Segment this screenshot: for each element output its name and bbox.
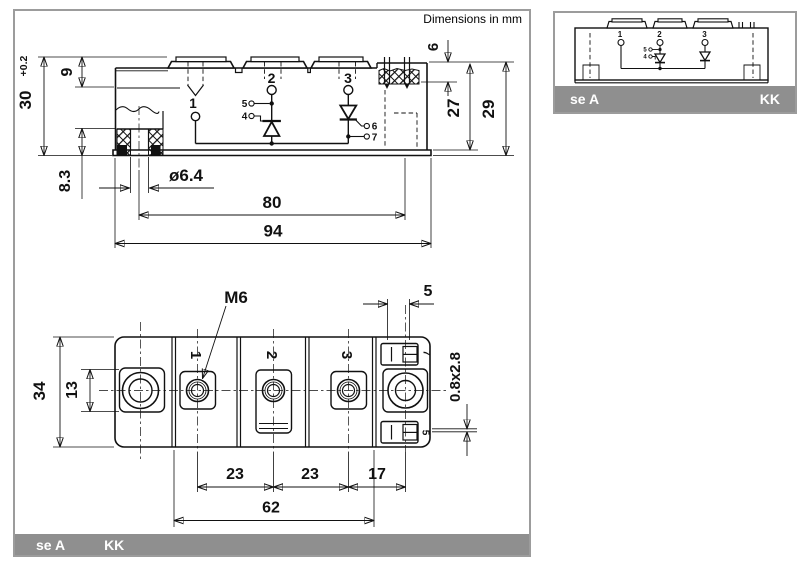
dim-hole-diameter-text: ø6.4 bbox=[169, 166, 204, 185]
dim-9-text: 9 bbox=[59, 67, 76, 76]
side-terminal-1-label: 1 bbox=[189, 96, 197, 111]
dim-tab-cross-section-text: 0.8x2.8 bbox=[447, 352, 464, 402]
dim-hole-diameter: ø6.4 bbox=[99, 166, 214, 188]
dim-23b-text: 23 bbox=[301, 466, 319, 483]
dim-30: 30 +0.2 bbox=[16, 55, 44, 155]
dim-30-text: 30 bbox=[16, 91, 35, 110]
dim-29-text: 29 bbox=[479, 100, 498, 119]
dim-62: 62 bbox=[174, 500, 374, 521]
dim-8-3-text: 8.3 bbox=[57, 170, 74, 192]
bottom-terminal-3-label: 3 bbox=[338, 351, 355, 359]
dim-13: 13 bbox=[64, 370, 90, 412]
dim-34: 34 bbox=[30, 337, 60, 447]
dim-27: 27 bbox=[444, 64, 470, 150]
gate-4-label: 4 bbox=[242, 112, 248, 123]
dim-94-text: 94 bbox=[264, 222, 283, 241]
dim-17-text: 17 bbox=[368, 466, 386, 483]
dim-23a: 23 bbox=[198, 466, 274, 487]
gate-6-label: 6 bbox=[372, 122, 378, 133]
dim-6: 6 bbox=[425, 40, 448, 96]
terminal-1-node bbox=[191, 112, 199, 120]
drawing-page: Dimensions in mm se A KK se A KK bbox=[0, 0, 803, 568]
dim-27-text: 27 bbox=[444, 99, 463, 118]
dim-62-text: 62 bbox=[262, 500, 280, 517]
dim-13-text: 13 bbox=[64, 381, 81, 399]
detail-terminal-3-label: 3 bbox=[702, 30, 707, 39]
detail-terminal-2-label: 2 bbox=[657, 30, 662, 39]
dim-94: 94 bbox=[115, 222, 431, 244]
dim-6-text: 6 bbox=[425, 43, 442, 51]
dim-23a-text: 23 bbox=[226, 466, 244, 483]
bottom-view-outline bbox=[99, 305, 449, 459]
tab-5-label: 5 bbox=[420, 430, 431, 436]
thyristor1-symbol bbox=[264, 122, 279, 136]
tab-7-label: 7 bbox=[421, 350, 432, 356]
gate-7-label: 7 bbox=[372, 133, 378, 144]
dim-5-tab: 5 bbox=[363, 283, 434, 340]
dim-17: 17 bbox=[349, 466, 406, 487]
side-view: 1 2 3 5 4 6 7 bbox=[16, 40, 514, 248]
side-terminal-2-label: 2 bbox=[268, 70, 276, 86]
dim-9: 9 bbox=[59, 57, 82, 87]
dim-30-tolerance-text: +0.2 bbox=[18, 55, 30, 76]
bottom-terminal-1-label: 1 bbox=[187, 351, 204, 359]
dim-23b: 23 bbox=[274, 466, 349, 487]
gate-5-label: 5 bbox=[242, 99, 248, 110]
dim-34-text: 34 bbox=[30, 381, 49, 400]
dim-m6-text: M6 bbox=[224, 288, 248, 307]
detail-terminal-1-label: 1 bbox=[618, 30, 623, 39]
technical-drawing: 1 2 3 5 4 6 7 bbox=[0, 0, 803, 568]
dim-5-text: 5 bbox=[424, 283, 433, 300]
detail-view-drawing: 1 2 3 5 4 bbox=[575, 19, 768, 83]
bottom-terminal-2-label: 2 bbox=[263, 351, 280, 359]
thyristor2-symbol bbox=[340, 106, 356, 120]
dim-29: 29 bbox=[479, 62, 506, 156]
dim-80-text: 80 bbox=[263, 193, 282, 212]
dim-80: 80 bbox=[139, 193, 405, 215]
side-terminal-3-label: 3 bbox=[344, 70, 352, 86]
dim-tab-cross-section: 0.8x2.8 bbox=[432, 352, 477, 456]
dim-8-3: 8.3 bbox=[57, 129, 82, 193]
side-view-circuit: 1 2 3 5 4 6 7 bbox=[189, 70, 377, 146]
terminal-2-node bbox=[267, 86, 276, 95]
bottom-view: 1 2 3 7 5 34 13 bbox=[30, 283, 477, 527]
terminal-3-node bbox=[344, 86, 353, 95]
